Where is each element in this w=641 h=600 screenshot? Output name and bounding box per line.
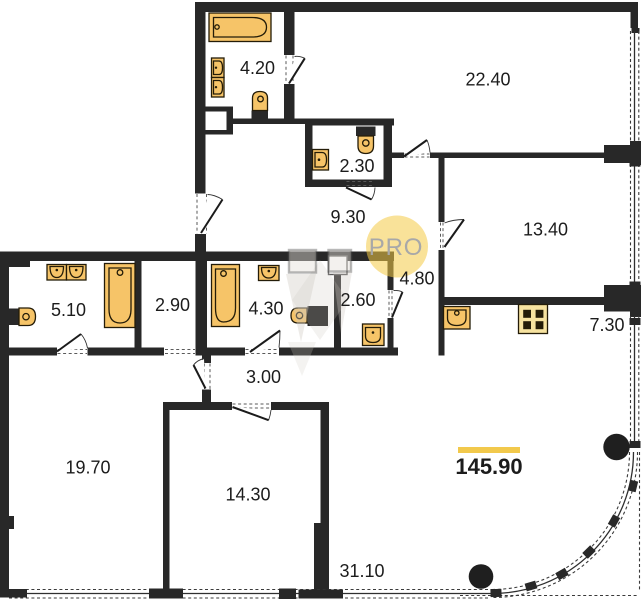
svg-text:7.30: 7.30 [589,315,624,335]
svg-text:PRO: PRO [369,234,423,261]
svg-text:2.60: 2.60 [340,290,375,310]
svg-text:31.10: 31.10 [339,561,384,581]
svg-text:19.70: 19.70 [65,458,110,478]
svg-text:13.40: 13.40 [523,220,568,240]
svg-text:4.80: 4.80 [399,269,434,289]
svg-text:22.40: 22.40 [465,70,510,90]
svg-text:145.90: 145.90 [455,454,522,479]
svg-text:9.30: 9.30 [330,207,365,227]
svg-text:14.30: 14.30 [225,485,270,505]
svg-text:2.90: 2.90 [155,295,190,315]
svg-text:2.30: 2.30 [339,156,374,176]
svg-text:4.20: 4.20 [240,58,275,78]
svg-text:5.10: 5.10 [51,300,86,320]
svg-text:3.00: 3.00 [246,367,281,387]
svg-text:4.30: 4.30 [248,299,283,319]
